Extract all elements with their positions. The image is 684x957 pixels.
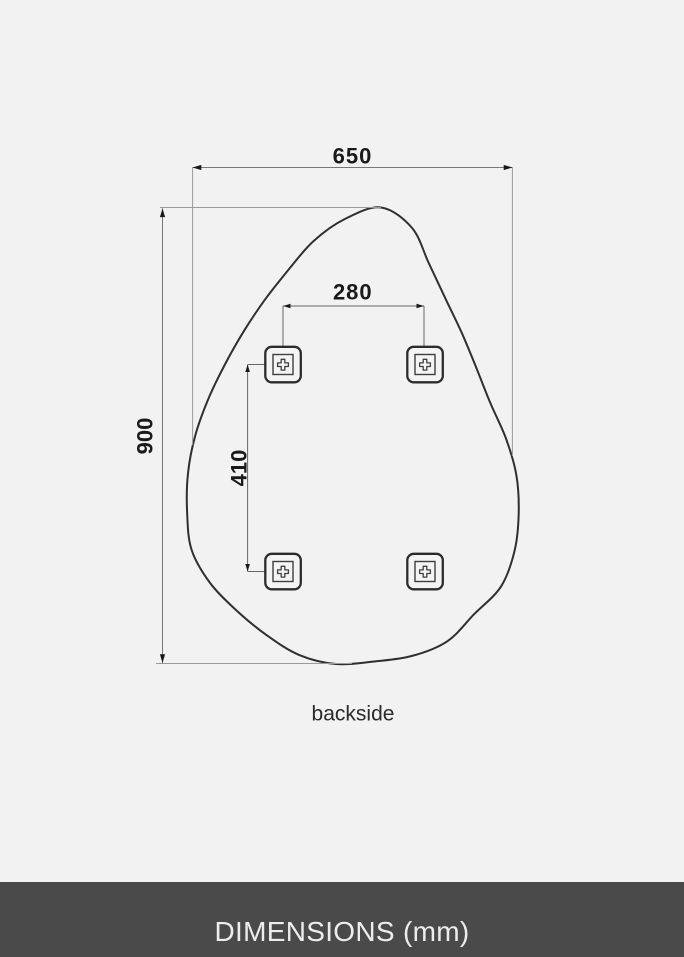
- svg-text:DIMENSIONS (mm): DIMENSIONS (mm): [215, 916, 470, 947]
- svg-text:650: 650: [333, 144, 373, 169]
- svg-text:backside: backside: [312, 703, 395, 726]
- svg-text:410: 410: [226, 450, 251, 487]
- svg-text:900: 900: [133, 418, 158, 455]
- svg-text:280: 280: [333, 280, 373, 305]
